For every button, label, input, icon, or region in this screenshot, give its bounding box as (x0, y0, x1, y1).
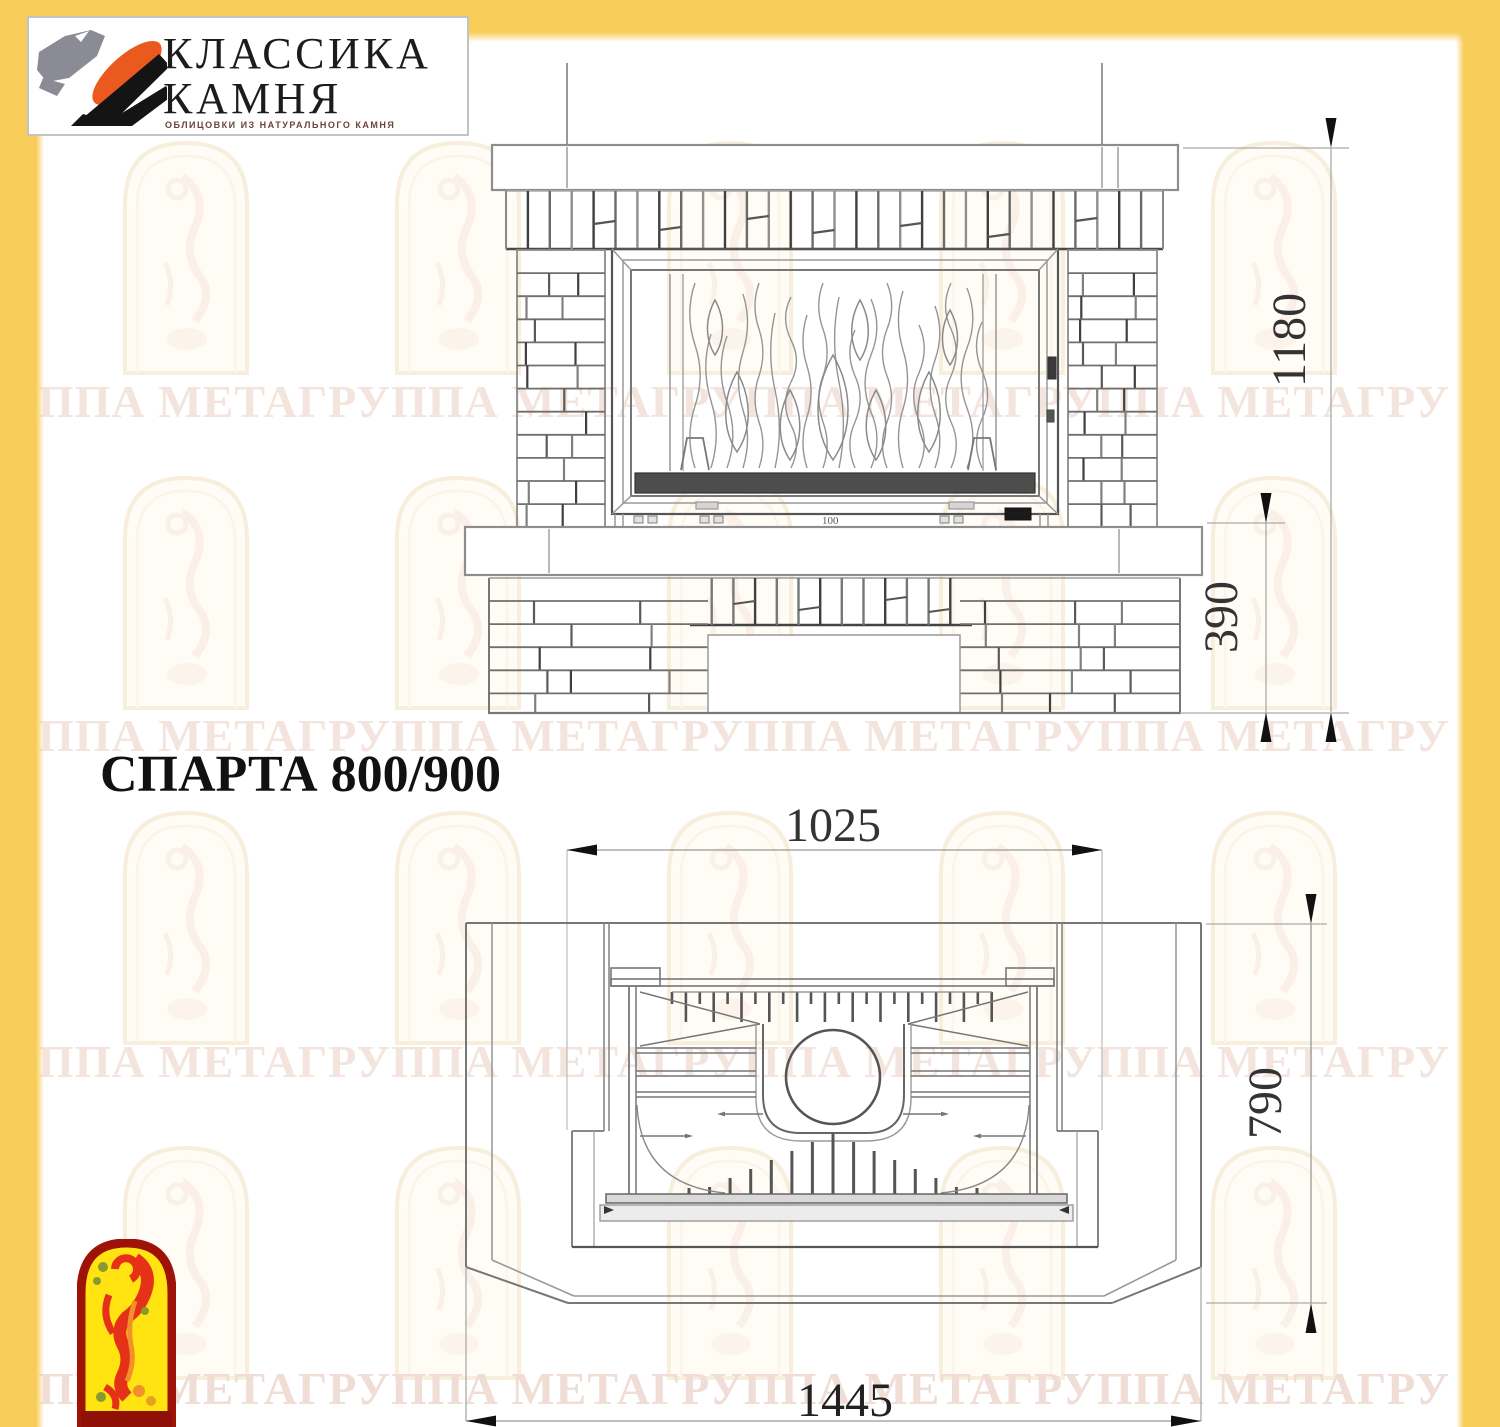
svg-text:1025: 1025 (785, 799, 881, 852)
svg-text:100: 100 (822, 515, 839, 527)
svg-text:1445: 1445 (797, 1374, 893, 1427)
svg-text:790: 790 (1239, 1067, 1292, 1139)
svg-text:СПАРТА 800/900: СПАРТА 800/900 (100, 746, 501, 803)
svg-text:1180: 1180 (1263, 293, 1316, 387)
svg-text:390: 390 (1195, 581, 1248, 653)
